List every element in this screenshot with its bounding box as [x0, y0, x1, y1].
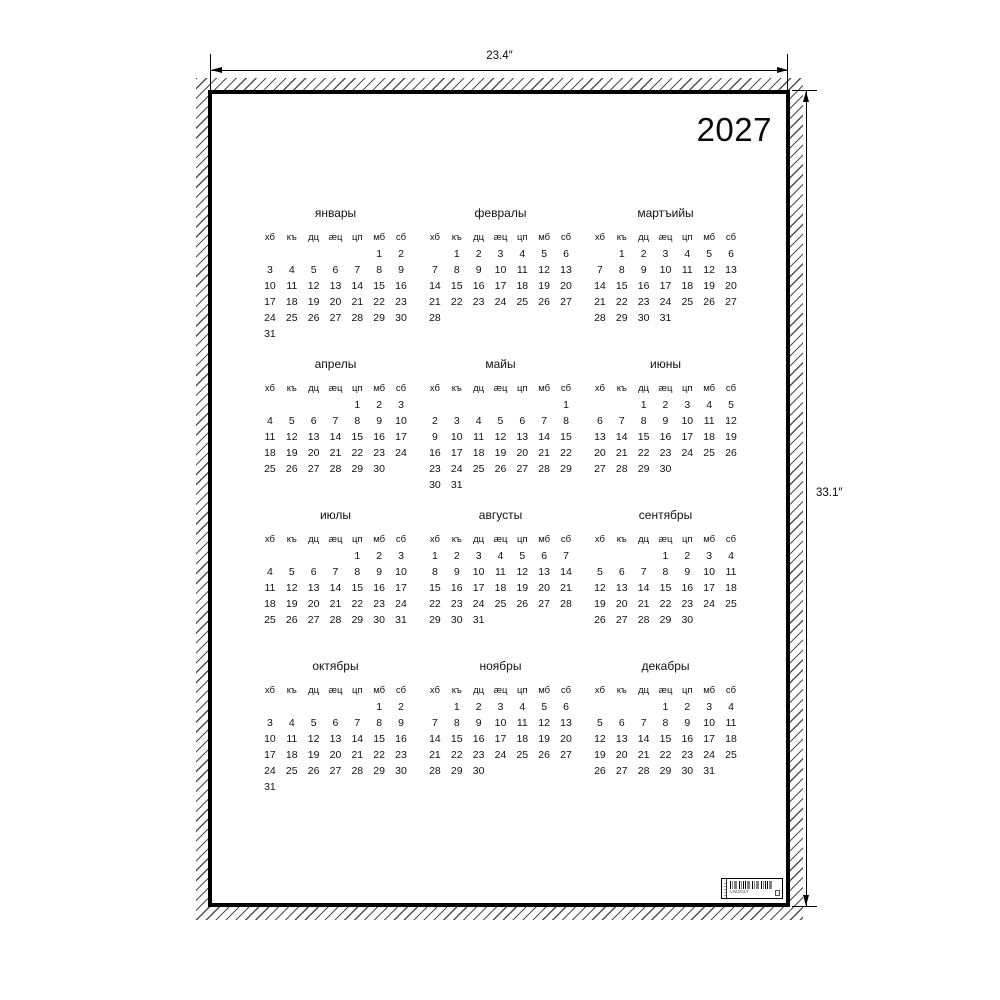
- weekday-header: къ: [446, 532, 468, 548]
- day-cell: 11: [720, 564, 742, 580]
- day-cell: 20: [325, 747, 347, 763]
- day-cell: 5: [511, 548, 533, 564]
- day-cell: [303, 326, 325, 342]
- weekday-header: цп: [346, 532, 368, 548]
- week-row: 16171819202122: [424, 445, 577, 461]
- week-row: 1: [424, 397, 577, 413]
- day-cell: [390, 461, 412, 477]
- day-cell: 21: [325, 596, 347, 612]
- month-title: ноябры: [424, 658, 577, 674]
- day-cell: 27: [611, 763, 633, 779]
- week-row: 14151617181920: [424, 731, 577, 747]
- day-cell: 12: [281, 429, 303, 445]
- day-cell: 7: [325, 564, 347, 580]
- weekday-header: æц: [490, 381, 512, 397]
- day-cell: 24: [490, 294, 512, 310]
- day-cell: 12: [511, 564, 533, 580]
- day-cell: [720, 310, 742, 326]
- day-cell: 8: [368, 262, 390, 278]
- weekday-header-row: хбкъдцæццпмбсб: [424, 683, 577, 699]
- weekday-header: хб: [424, 683, 446, 699]
- day-cell: 19: [490, 445, 512, 461]
- width-dimension-line: [211, 70, 788, 71]
- day-cell: 10: [259, 278, 281, 294]
- weekday-header: цп: [676, 381, 698, 397]
- months-grid: январыхбкъдцæццпмбсб12345678910111213141…: [259, 205, 742, 809]
- day-cell: 3: [446, 413, 468, 429]
- week-row: 17181920212223: [259, 294, 412, 310]
- day-cell: 15: [655, 731, 677, 747]
- day-cell: [390, 779, 412, 795]
- weekday-header: къ: [281, 532, 303, 548]
- day-cell: 27: [555, 294, 577, 310]
- day-cell: [533, 310, 555, 326]
- weekday-header: дц: [468, 683, 490, 699]
- day-cell: 8: [446, 262, 468, 278]
- day-cell: 10: [468, 564, 490, 580]
- day-cell: 25: [281, 310, 303, 326]
- weekday-header: мб: [368, 532, 390, 548]
- day-cell: 27: [325, 310, 347, 326]
- weekday-header: сб: [720, 683, 742, 699]
- day-cell: [325, 246, 347, 262]
- day-cell: 25: [698, 445, 720, 461]
- day-cell: 14: [325, 580, 347, 596]
- month-block: январыхбкъдцæццпмбсб12345678910111213141…: [259, 205, 412, 356]
- weekday-header: хб: [259, 381, 281, 397]
- day-cell: 28: [346, 763, 368, 779]
- day-cell: 31: [698, 763, 720, 779]
- day-cell: [611, 397, 633, 413]
- day-cell: 20: [303, 445, 325, 461]
- day-cell: [589, 548, 611, 564]
- day-cell: [533, 763, 555, 779]
- day-cell: 5: [490, 413, 512, 429]
- day-cell: 2: [390, 246, 412, 262]
- day-cell: 21: [633, 747, 655, 763]
- day-cell: [676, 310, 698, 326]
- day-cell: 31: [259, 779, 281, 795]
- day-cell: 21: [424, 747, 446, 763]
- month-block: февралыхбкъдцæццпмбсб1234567891011121314…: [424, 205, 577, 356]
- month-block: октябрыхбкъдцæццпмбсб1234567891011121314…: [259, 658, 412, 809]
- day-cell: 4: [259, 413, 281, 429]
- day-cell: 24: [390, 596, 412, 612]
- day-cell: 7: [633, 564, 655, 580]
- weekday-header: сб: [720, 532, 742, 548]
- day-cell: [346, 246, 368, 262]
- day-cell: [303, 246, 325, 262]
- day-cell: 19: [589, 747, 611, 763]
- day-cell: [511, 763, 533, 779]
- day-cell: 17: [390, 429, 412, 445]
- day-cell: 30: [655, 461, 677, 477]
- weekday-header: æц: [655, 230, 677, 246]
- day-cell: 17: [490, 278, 512, 294]
- week-row: 14151617181920: [589, 278, 742, 294]
- weekday-header: мб: [698, 683, 720, 699]
- week-row: 10111213141516: [259, 278, 412, 294]
- year-title: 2027: [697, 111, 772, 149]
- day-cell: 13: [720, 262, 742, 278]
- day-cell: [490, 397, 512, 413]
- day-cell: 5: [533, 699, 555, 715]
- day-cell: 29: [555, 461, 577, 477]
- weekday-header: къ: [446, 230, 468, 246]
- day-cell: 10: [390, 564, 412, 580]
- week-row: 9101112131415: [424, 429, 577, 445]
- day-cell: 18: [281, 747, 303, 763]
- weekday-header: къ: [281, 683, 303, 699]
- week-row: 3456789: [259, 262, 412, 278]
- day-cell: 6: [589, 413, 611, 429]
- month-title: декабры: [589, 658, 742, 674]
- day-cell: 2: [390, 699, 412, 715]
- day-cell: 30: [424, 477, 446, 493]
- day-cell: [555, 477, 577, 493]
- day-cell: 17: [490, 731, 512, 747]
- day-cell: 6: [555, 246, 577, 262]
- weekday-header: хб: [259, 532, 281, 548]
- day-cell: 13: [325, 278, 347, 294]
- day-cell: 6: [325, 262, 347, 278]
- day-cell: 19: [511, 580, 533, 596]
- day-cell: 8: [633, 413, 655, 429]
- week-row: 123456: [424, 246, 577, 262]
- day-cell: 10: [446, 429, 468, 445]
- day-cell: [720, 763, 742, 779]
- month-block: декабрыхбкъдцæццпмбсб1234567891011121314…: [589, 658, 742, 809]
- arrow-right-icon: [777, 67, 788, 73]
- day-cell: 30: [676, 612, 698, 628]
- day-cell: 6: [720, 246, 742, 262]
- day-cell: 4: [259, 564, 281, 580]
- day-cell: 11: [259, 580, 281, 596]
- day-cell: 16: [368, 580, 390, 596]
- day-cell: 14: [533, 429, 555, 445]
- day-cell: 24: [490, 747, 512, 763]
- day-cell: 17: [698, 731, 720, 747]
- day-cell: [511, 397, 533, 413]
- week-row: 45678910: [259, 564, 412, 580]
- day-cell: 29: [611, 310, 633, 326]
- day-cell: 24: [698, 747, 720, 763]
- day-cell: [698, 612, 720, 628]
- day-cell: 14: [611, 429, 633, 445]
- day-cell: 13: [555, 715, 577, 731]
- day-cell: 15: [346, 580, 368, 596]
- day-cell: 7: [325, 413, 347, 429]
- day-cell: [303, 548, 325, 564]
- day-cell: 20: [533, 580, 555, 596]
- day-cell: [468, 397, 490, 413]
- day-cell: 2: [368, 548, 390, 564]
- day-cell: 2: [676, 548, 698, 564]
- week-row: 123: [259, 548, 412, 564]
- day-cell: 17: [390, 580, 412, 596]
- day-cell: 6: [303, 564, 325, 580]
- day-cell: 11: [676, 262, 698, 278]
- week-row: 78910111213: [424, 715, 577, 731]
- day-cell: 6: [511, 413, 533, 429]
- day-cell: 26: [281, 461, 303, 477]
- day-cell: 12: [589, 731, 611, 747]
- day-cell: 4: [281, 715, 303, 731]
- day-cell: 31: [390, 612, 412, 628]
- week-row: 24252627282930: [259, 310, 412, 326]
- day-cell: 26: [589, 612, 611, 628]
- day-cell: 10: [676, 413, 698, 429]
- day-cell: 14: [346, 278, 368, 294]
- weekday-header-row: хбкъдцæццпмбсб: [424, 532, 577, 548]
- week-row: 24252627282930: [259, 763, 412, 779]
- day-cell: 12: [589, 580, 611, 596]
- day-cell: 7: [555, 548, 577, 564]
- day-cell: 18: [511, 278, 533, 294]
- week-row: 1234: [589, 548, 742, 564]
- weekday-header: дц: [303, 381, 325, 397]
- day-cell: [281, 246, 303, 262]
- day-cell: 21: [533, 445, 555, 461]
- day-cell: 25: [511, 747, 533, 763]
- day-cell: 27: [533, 596, 555, 612]
- day-cell: 3: [676, 397, 698, 413]
- day-cell: 5: [589, 564, 611, 580]
- week-row: 31: [259, 326, 412, 342]
- day-cell: [259, 699, 281, 715]
- week-row: 28: [424, 310, 577, 326]
- day-cell: 27: [325, 763, 347, 779]
- day-cell: 13: [555, 262, 577, 278]
- month-block: апрелыхбкъдцæццпмбсб12345678910111213141…: [259, 356, 412, 507]
- weekday-header: къ: [281, 230, 303, 246]
- day-cell: 16: [468, 278, 490, 294]
- day-cell: 29: [655, 763, 677, 779]
- day-cell: [424, 397, 446, 413]
- day-cell: 30: [368, 461, 390, 477]
- weekday-header: мб: [698, 381, 720, 397]
- day-cell: [390, 326, 412, 342]
- day-cell: 30: [390, 763, 412, 779]
- weekday-header: хб: [589, 381, 611, 397]
- day-cell: [303, 699, 325, 715]
- day-cell: 7: [633, 715, 655, 731]
- day-cell: 18: [468, 445, 490, 461]
- day-cell: 3: [390, 397, 412, 413]
- day-cell: 30: [633, 310, 655, 326]
- day-cell: 1: [368, 699, 390, 715]
- weekday-header: хб: [259, 683, 281, 699]
- weekday-header: дц: [633, 381, 655, 397]
- day-cell: 16: [468, 731, 490, 747]
- day-cell: 4: [511, 699, 533, 715]
- day-cell: 22: [655, 596, 677, 612]
- week-row: 293031: [424, 612, 577, 628]
- weekday-header: мб: [368, 683, 390, 699]
- day-cell: 4: [468, 413, 490, 429]
- day-cell: 5: [698, 246, 720, 262]
- day-cell: 21: [346, 294, 368, 310]
- weekday-header: æц: [490, 230, 512, 246]
- day-cell: 23: [676, 747, 698, 763]
- week-row: 17181920212223: [259, 747, 412, 763]
- weekday-header: дц: [303, 532, 325, 548]
- week-row: 567891011: [589, 564, 742, 580]
- weekday-header: къ: [446, 683, 468, 699]
- arrow-up-icon: [803, 91, 809, 102]
- day-cell: 25: [259, 612, 281, 628]
- day-cell: [490, 612, 512, 628]
- arrow-down-icon: [803, 895, 809, 906]
- day-cell: 27: [720, 294, 742, 310]
- day-cell: 15: [611, 278, 633, 294]
- weekday-header: дц: [468, 381, 490, 397]
- day-cell: 17: [259, 747, 281, 763]
- day-cell: [720, 461, 742, 477]
- day-cell: 16: [368, 429, 390, 445]
- weekday-header: цп: [346, 381, 368, 397]
- day-cell: 4: [676, 246, 698, 262]
- day-cell: 12: [720, 413, 742, 429]
- weekday-header-row: хбкъдцæццпмбсб: [424, 230, 577, 246]
- day-cell: 15: [633, 429, 655, 445]
- day-cell: 1: [555, 397, 577, 413]
- day-cell: [490, 310, 512, 326]
- day-cell: 3: [390, 548, 412, 564]
- month-title: мартъийы: [589, 205, 742, 221]
- weekday-header: цп: [511, 230, 533, 246]
- week-row: 252627282930: [259, 461, 412, 477]
- day-cell: 22: [446, 294, 468, 310]
- day-cell: 13: [533, 564, 555, 580]
- weekday-header: æц: [655, 683, 677, 699]
- day-cell: 18: [259, 445, 281, 461]
- day-cell: 28: [424, 310, 446, 326]
- label-box-mark: [775, 890, 780, 896]
- day-cell: 9: [446, 564, 468, 580]
- day-cell: 13: [325, 731, 347, 747]
- day-cell: 14: [424, 278, 446, 294]
- week-row: 22232425262728: [424, 596, 577, 612]
- day-cell: 18: [259, 596, 281, 612]
- day-cell: [281, 779, 303, 795]
- day-cell: 30: [468, 763, 490, 779]
- calendar-poster: 2027 январыхбкъдцæццпмбсб123456789101112…: [208, 90, 790, 907]
- day-cell: 4: [511, 246, 533, 262]
- weekday-header: мб: [698, 230, 720, 246]
- day-cell: 3: [468, 548, 490, 564]
- day-cell: [511, 612, 533, 628]
- day-cell: 19: [281, 445, 303, 461]
- week-row: 891011121314: [424, 564, 577, 580]
- day-cell: 10: [655, 262, 677, 278]
- day-cell: 5: [589, 715, 611, 731]
- day-cell: [676, 461, 698, 477]
- day-cell: 8: [368, 715, 390, 731]
- weekday-header: мб: [533, 230, 555, 246]
- day-cell: 18: [676, 278, 698, 294]
- weekday-header: дц: [468, 532, 490, 548]
- weekday-header: æц: [325, 532, 347, 548]
- day-cell: 19: [303, 747, 325, 763]
- week-row: 10111213141516: [259, 731, 412, 747]
- day-cell: 9: [633, 262, 655, 278]
- day-cell: 24: [259, 763, 281, 779]
- week-row: 12: [259, 246, 412, 262]
- day-cell: 10: [259, 731, 281, 747]
- day-cell: 5: [303, 715, 325, 731]
- day-cell: 14: [555, 564, 577, 580]
- day-cell: 14: [633, 731, 655, 747]
- weekday-header: æц: [325, 381, 347, 397]
- day-cell: [589, 397, 611, 413]
- day-cell: 21: [325, 445, 347, 461]
- weekday-header: дц: [303, 683, 325, 699]
- day-cell: 11: [490, 564, 512, 580]
- day-cell: 22: [346, 445, 368, 461]
- day-cell: 23: [676, 596, 698, 612]
- day-cell: 31: [468, 612, 490, 628]
- poster-mockup-canvas: 23.4″ 33.1″ 2027 январыхбкъдцæццпмбсб123…: [0, 0, 1000, 1000]
- day-cell: 7: [424, 262, 446, 278]
- day-cell: 13: [511, 429, 533, 445]
- weekday-header: сб: [390, 230, 412, 246]
- day-cell: [259, 246, 281, 262]
- day-cell: 8: [555, 413, 577, 429]
- day-cell: [424, 246, 446, 262]
- day-cell: [468, 477, 490, 493]
- week-row: 2345678: [424, 413, 577, 429]
- day-cell: 2: [368, 397, 390, 413]
- day-cell: 26: [533, 747, 555, 763]
- day-cell: 22: [368, 294, 390, 310]
- day-cell: 5: [533, 246, 555, 262]
- day-cell: 19: [303, 294, 325, 310]
- weekday-header: хб: [424, 230, 446, 246]
- weekday-header: сб: [390, 683, 412, 699]
- day-cell: 15: [424, 580, 446, 596]
- day-cell: [325, 699, 347, 715]
- day-cell: 26: [281, 612, 303, 628]
- day-cell: 22: [655, 747, 677, 763]
- day-cell: 22: [368, 747, 390, 763]
- day-cell: 10: [698, 715, 720, 731]
- day-cell: 24: [468, 596, 490, 612]
- day-cell: 21: [633, 596, 655, 612]
- day-cell: 21: [424, 294, 446, 310]
- day-cell: 20: [611, 596, 633, 612]
- day-cell: [511, 477, 533, 493]
- day-cell: 8: [446, 715, 468, 731]
- day-cell: 1: [655, 548, 677, 564]
- day-cell: 28: [633, 612, 655, 628]
- day-cell: 20: [611, 747, 633, 763]
- day-cell: 8: [611, 262, 633, 278]
- day-cell: 11: [281, 278, 303, 294]
- weekday-header: æц: [655, 381, 677, 397]
- day-cell: [259, 548, 281, 564]
- day-cell: 24: [390, 445, 412, 461]
- day-cell: 20: [511, 445, 533, 461]
- day-cell: 17: [655, 278, 677, 294]
- day-cell: 7: [424, 715, 446, 731]
- day-cell: 1: [446, 699, 468, 715]
- day-cell: 19: [281, 596, 303, 612]
- day-cell: 6: [611, 715, 633, 731]
- day-cell: 18: [490, 580, 512, 596]
- week-row: 21222324252627: [424, 294, 577, 310]
- week-row: 27282930: [589, 461, 742, 477]
